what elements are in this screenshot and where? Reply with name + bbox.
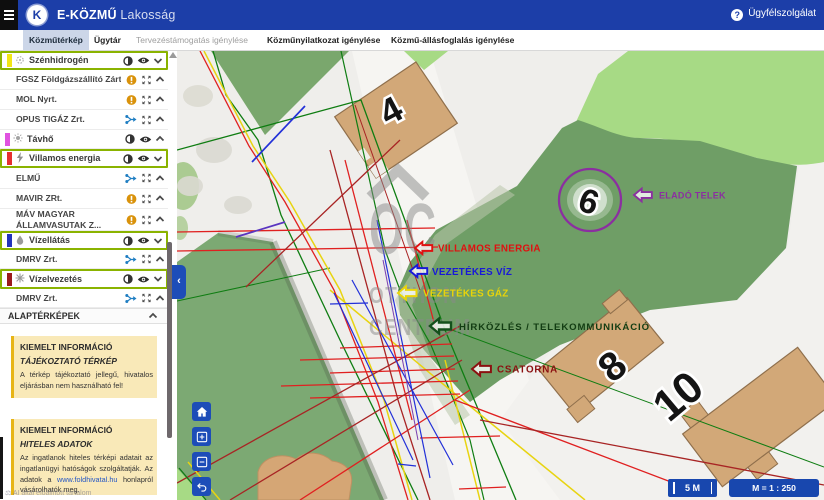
svg-text:VEZETÉKES VÍZ: VEZETÉKES VÍZ <box>432 266 512 278</box>
svg-text:VEZETÉKES GÁZ: VEZETÉKES GÁZ <box>423 288 509 300</box>
svg-text:VILLAMOS ENERGIA: VILLAMOS ENERGIA <box>438 244 541 255</box>
svg-text:OC: OC <box>369 189 436 270</box>
svg-text:CSATORNA: CSATORNA <box>497 365 558 376</box>
svg-text:ELADÓ TELEK: ELADÓ TELEK <box>659 190 726 201</box>
svg-text:CENTRUM: CENTRUM <box>369 315 471 340</box>
svg-text:HÍRKÖZLÉS / TELEKOMMUNIKÁCIÓ: HÍRKÖZLÉS / TELEKOMMUNIKÁCIÓ <box>459 321 650 333</box>
